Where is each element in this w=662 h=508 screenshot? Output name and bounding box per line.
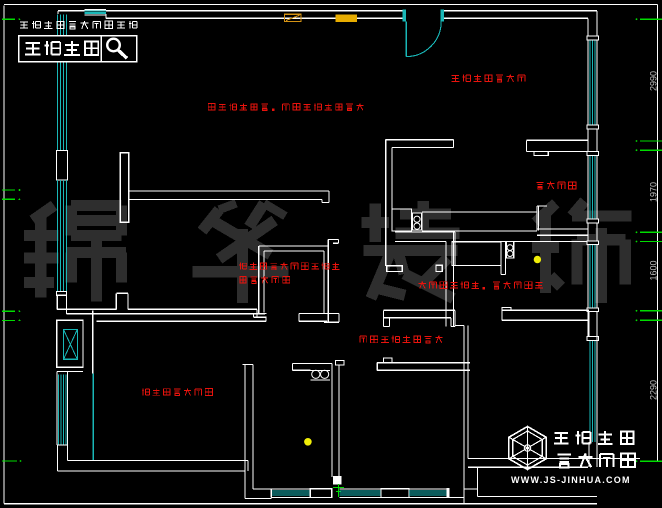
svg-text:1600: 1600 bbox=[649, 260, 659, 280]
svg-text:1970: 1970 bbox=[649, 182, 659, 202]
svg-text:WWW.JS-JINHUA.COM: WWW.JS-JINHUA.COM bbox=[511, 475, 631, 485]
svg-text:2990: 2990 bbox=[649, 71, 659, 91]
svg-text:2290: 2290 bbox=[649, 380, 659, 400]
